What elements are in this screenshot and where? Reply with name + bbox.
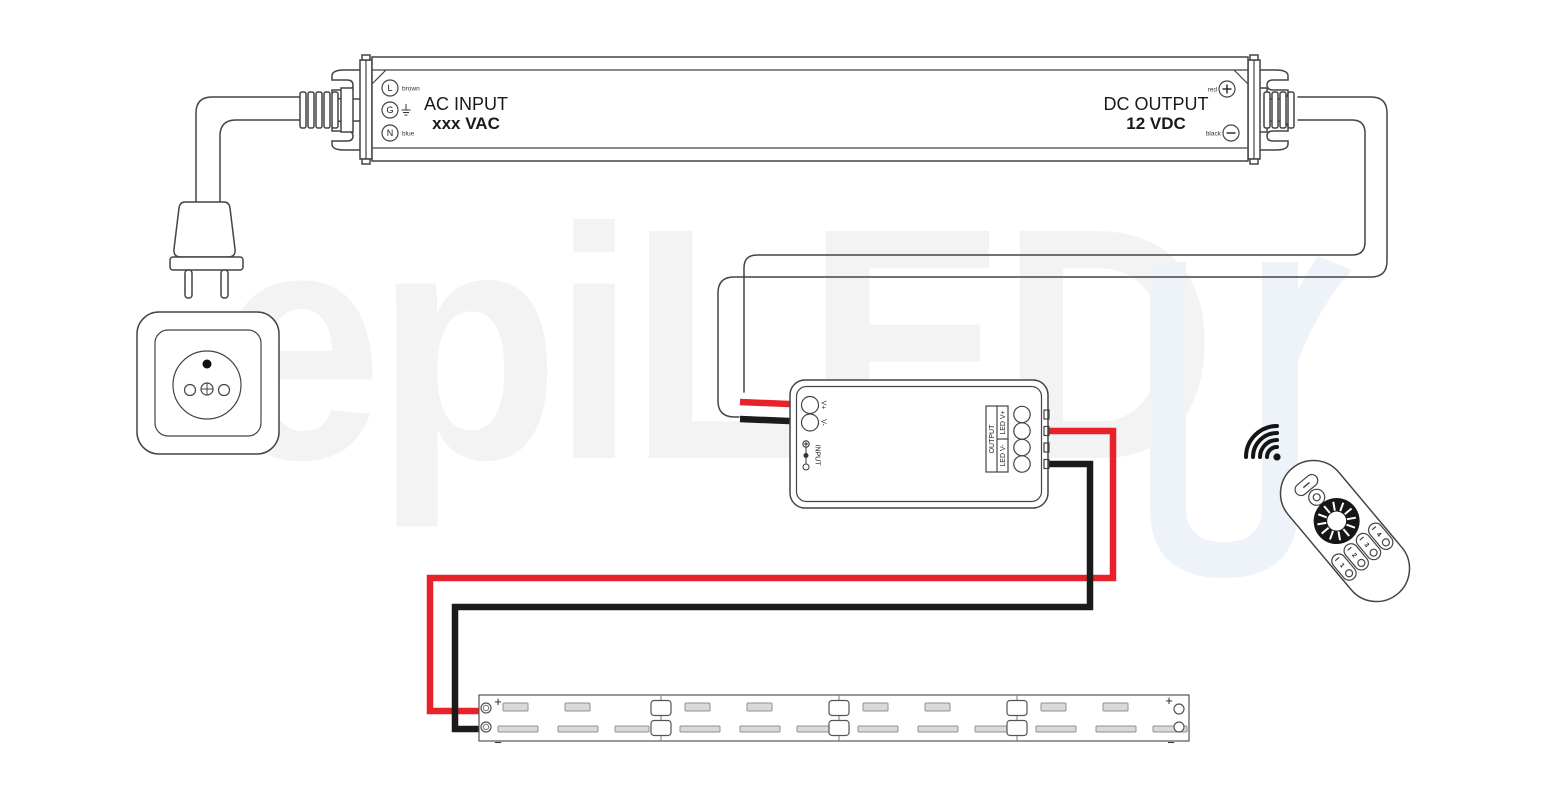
- input-label: INPUT: [814, 445, 821, 467]
- terminal-live-wire-label: brown: [402, 86, 420, 93]
- power-supply: L brown G N blue red black AC I: [300, 55, 1294, 164]
- strip-minus-right: −: [1167, 735, 1175, 750]
- led-v-plus-label: LED V+: [1000, 410, 1007, 434]
- watermark-text: epiLED: [215, 159, 1210, 530]
- terminal-black-label: black: [1206, 131, 1222, 138]
- cable-gland-right: [1255, 88, 1294, 132]
- dc-output-value: 12 VDC: [1126, 114, 1186, 133]
- plug-base: [170, 257, 243, 270]
- led-controller: V+ V- INPUT OUTPUT LED V+ LED V-: [790, 380, 1049, 508]
- strip-plus-left: +: [494, 694, 502, 709]
- v-minus-label: V-: [820, 419, 827, 426]
- terminal-ground: G: [386, 105, 393, 115]
- terminal-neutral: N: [387, 128, 394, 138]
- led-strip: + − + −: [479, 693, 1189, 750]
- cable-gland-left: [300, 88, 353, 132]
- plug-body: [174, 202, 235, 257]
- ac-input-label: AC INPUT: [424, 94, 508, 114]
- plug-pin-right: [221, 270, 228, 298]
- strip-minus-left: −: [494, 735, 502, 750]
- terminal-neutral-wire-label: blue: [402, 131, 415, 138]
- wall-socket: [137, 312, 279, 454]
- dc-output-label: DC OUTPUT: [1104, 94, 1209, 114]
- ac-input-value: xxx VAC: [432, 114, 500, 133]
- terminal-red-label: red: [1208, 87, 1218, 94]
- led-v-minus-label: LED V-: [1000, 444, 1007, 467]
- v-plus-label: V+: [820, 401, 827, 410]
- strip-plus-right: +: [1165, 693, 1173, 708]
- terminal-live: L: [387, 83, 392, 93]
- wiring-diagram: epiLED: [0, 0, 1550, 800]
- plug-pin-left: [185, 270, 192, 298]
- watermark: epiLED: [215, 159, 1352, 578]
- socket-ground-pin: [203, 360, 212, 369]
- output-label: OUTPUT: [989, 424, 996, 454]
